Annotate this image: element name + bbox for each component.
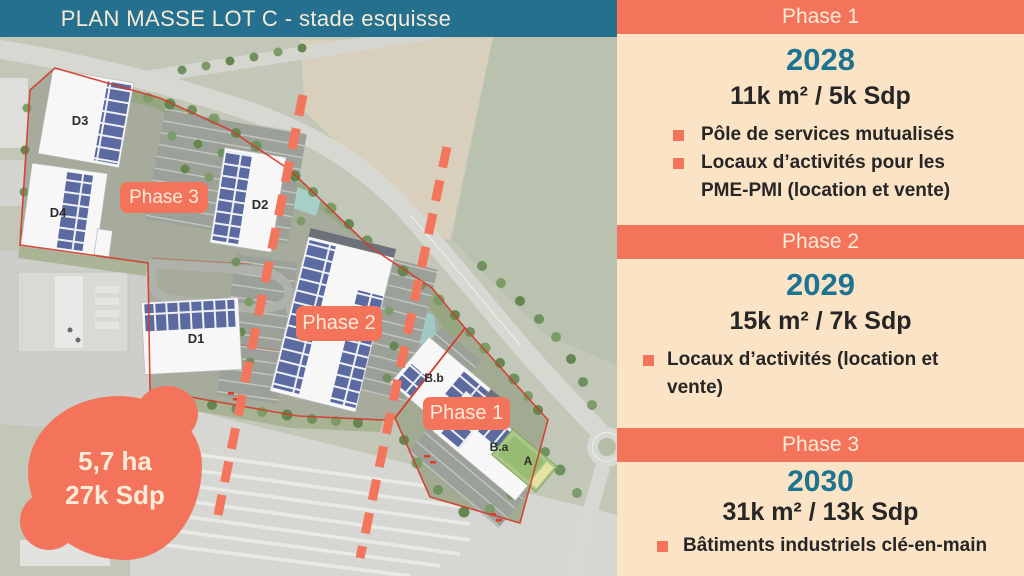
building-label-d1: D1 (188, 331, 205, 346)
bullet-item: Pôle de services mutualisés (617, 121, 1024, 149)
area-summary-blob: 5,7 ha 27k Sdp (28, 396, 202, 560)
bullet-item: Locaux d’activités (location et vente) (617, 346, 1024, 402)
phase-1-header: Phase 1 (617, 0, 1024, 34)
phase-2-header: Phase 2 (617, 225, 1024, 259)
blob-area-sdp: 27k Sdp (65, 478, 165, 512)
building-label-bb: B.b (424, 371, 443, 385)
phase-3-header: Phase 3 (617, 428, 1024, 462)
building-label-d3: D3 (72, 113, 89, 128)
map-badge-phase-3: Phase 3 (120, 182, 208, 213)
phase-3-area: 31k m² / 13k Sdp (617, 498, 1024, 526)
phase-1-year: 2028 (617, 41, 1024, 78)
building-label-d2: D2 (252, 197, 269, 212)
map-badge-phase-2: Phase 2 (296, 306, 382, 341)
map-badge-phase-1: Phase 1 (423, 397, 510, 430)
building-label-d4: D4 (50, 205, 67, 220)
phase-2-section: Phase 2 2029 15k m² / 7k Sdp Locaux d’ac… (617, 225, 1024, 402)
page-title: PLAN MASSE LOT C - stade esquisse (0, 6, 512, 32)
blob-area-ha: 5,7 ha (78, 444, 152, 478)
phase-3-year: 2030 (617, 465, 1024, 498)
phases-panel: Phase 1 2028 11k m² / 5k Sdp Pôle de ser… (617, 0, 1024, 576)
building-label-ba: B.a (490, 440, 509, 454)
phase-3-bullets: Bâtiments industriels clé-en-main (617, 532, 1024, 560)
phase-3-section: Phase 3 2030 31k m² / 13k Sdp Bâtiments … (617, 428, 1024, 560)
phase-2-year: 2029 (617, 266, 1024, 303)
phase-2-area: 15k m² / 7k Sdp (617, 306, 1024, 336)
phase-1-area: 11k m² / 5k Sdp (617, 81, 1024, 111)
bullet-item: Bâtiments industriels clé-en-main (617, 532, 1024, 560)
phase-2-bullets: Locaux d’activités (location et vente) (617, 346, 1024, 402)
slide-title-bar: PLAN MASSE LOT C - stade esquisse (0, 0, 617, 37)
bullet-item: Locaux d’activités pour les PME-PMI (loc… (617, 149, 1024, 205)
slide: D3 D4 D2 D1 B.b B.a A Phase 3 Phase 2 Ph… (0, 0, 1024, 576)
building-label-a: A (524, 454, 533, 468)
phase-1-bullets: Pôle de services mutualisés Locaux d’act… (617, 121, 1024, 205)
phase-1-section: Phase 1 2028 11k m² / 5k Sdp Pôle de ser… (617, 0, 1024, 205)
site-map: D3 D4 D2 D1 B.b B.a A Phase 3 Phase 2 Ph… (0, 0, 617, 576)
